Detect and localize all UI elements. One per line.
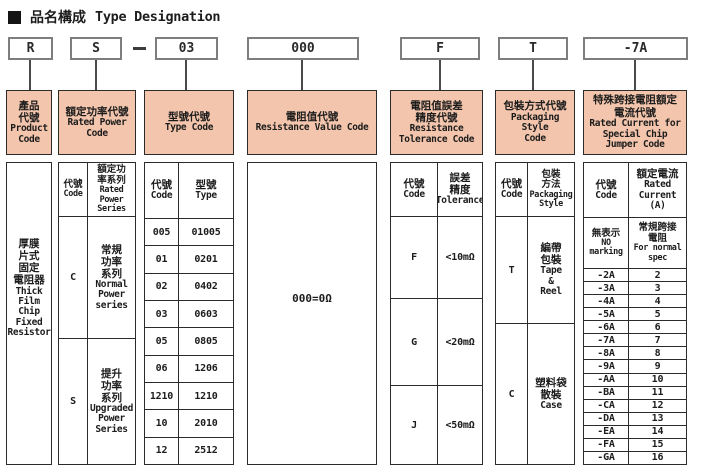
type-row-type-cell: 01005 <box>179 218 233 245</box>
power-subheader-desc-cell: 額定功 率系列 Rated Power Series <box>88 163 135 216</box>
jumper-row-code-cell: -6A <box>584 320 629 333</box>
cell-text: 包裝 方法 <box>541 170 560 191</box>
cell-text: Rated Current (A) <box>639 180 677 211</box>
power-row-desc-cell: 提升 功率 系列 Upgraded Power Series <box>88 338 135 464</box>
type-row-type-cell: 0805 <box>179 327 233 354</box>
tolerance-subheader-code-cell: 代號 Code <box>391 163 438 216</box>
dash-separator-icon <box>133 47 146 50</box>
tolerance-row-value-cell: <50mΩ <box>438 385 482 464</box>
jumper-row-code-cell: -FA <box>584 438 629 451</box>
connector-line <box>634 60 636 90</box>
header-text: 電阻值誤差 精度代號 <box>410 100 463 125</box>
jumper-no-marking-code-cell: 無表示 NO marking <box>584 217 629 268</box>
header-text: Rated Current for Special Chip Jumper Co… <box>589 119 680 151</box>
jumper-row-code-cell: -EA <box>584 425 629 438</box>
cell-text: NO marking <box>589 239 622 257</box>
cell-text: Rated Power Series <box>97 186 126 214</box>
title-cjk: 品名構成 <box>30 7 86 27</box>
cell-text: Type <box>195 191 216 201</box>
connector-line <box>532 60 534 90</box>
type-row-code-cell: 06 <box>145 355 179 382</box>
type-row-code-cell: 05 <box>145 327 179 354</box>
header-text: Rated Power Code <box>67 118 126 139</box>
connector-line <box>439 60 441 90</box>
code-box-power: S <box>70 37 122 60</box>
jumper-row-code-cell: -7A <box>584 333 629 346</box>
resistance-column-header: 電阻值代號 Resistance Value Code <box>247 90 377 155</box>
packaging-table: 代號 Code 包裝 方法 Packaging Style T 編帶 包裝 Ta… <box>495 162 575 465</box>
jumper-row-code-cell: -DA <box>584 412 629 425</box>
code-box-product: R <box>8 37 53 60</box>
type-row-code-cell: 02 <box>145 273 179 300</box>
power-column-header: 額定功率代號 Rated Power Code <box>58 90 136 155</box>
type-row-type-cell: 0402 <box>179 273 233 300</box>
cell-text: Code <box>501 190 522 200</box>
packaging-subheader-desc-cell: 包裝 方法 Packaging Style <box>528 163 574 216</box>
jumper-row-code-cell: -9A <box>584 359 629 372</box>
cell-text: 編帶 包裝 <box>541 242 562 266</box>
cell-text: Code <box>595 191 616 201</box>
packaging-subheader-code-cell: 代號 Code <box>496 163 528 216</box>
jumper-row-value-cell: 3 <box>629 281 686 294</box>
header-text: Resistance Tolerance Code <box>399 124 474 145</box>
jumper-row-code-cell: -4A <box>584 294 629 307</box>
jumper-no-marking-desc-cell: 常規跨接 電阻 For normal spec <box>629 217 686 268</box>
jumper-row-value-cell: 5 <box>629 307 686 320</box>
jumper-row-value-cell: 12 <box>629 399 686 412</box>
header-text: Resistance Value Code <box>256 123 369 134</box>
cell-text: 誤差 精度 <box>450 172 471 196</box>
type-row-type-cell: 0201 <box>179 245 233 272</box>
jumper-row-value-cell: 11 <box>629 386 686 399</box>
tolerance-row-value-cell: <10mΩ <box>438 216 482 298</box>
product-column-header: 產品 代號 Product Code <box>6 90 52 155</box>
cell-text: Case <box>540 401 561 411</box>
type-row-code-cell: 01 <box>145 245 179 272</box>
jumper-row-code-cell: -AA <box>584 373 629 386</box>
header-text: 包裝方式代號 <box>504 100 567 112</box>
product-body: 厚膜 片式 固定 電阻器 Thick Film Chip Fixed Resis… <box>6 162 52 465</box>
jumper-row-code-cell: -5A <box>584 307 629 320</box>
tolerance-row-code-cell: G <box>391 298 438 385</box>
page-title: 品名構成 Type Designation <box>8 7 220 27</box>
type-row-code-cell: 1210 <box>145 382 179 409</box>
jumper-row-code-cell: -2A <box>584 268 629 281</box>
header-text: Type Code <box>165 123 213 134</box>
header-text: 產品 代號 <box>19 100 40 125</box>
type-table: 代號 Code 型號 Type 005 01005 01 0201 02 040… <box>144 162 234 465</box>
packaging-column-header: 包裝方式代號 Packaging Style Code <box>495 90 575 155</box>
code-box-packaging: T <box>498 37 568 60</box>
connector-line <box>301 60 303 90</box>
jumper-row-value-cell: 16 <box>629 451 686 464</box>
jumper-row-value-cell: 2 <box>629 268 686 281</box>
cell-text: 提升 功率 系列 <box>101 368 122 404</box>
power-table: 代號 Code 額定功 率系列 Rated Power Series C 常規 … <box>58 162 136 465</box>
jumper-row-value-cell: 7 <box>629 333 686 346</box>
tolerance-subheader-desc-cell: 誤差 精度 Tolerance <box>438 163 482 216</box>
cell-text: Tape & Reel <box>540 266 561 297</box>
type-row-type-cell: 0603 <box>179 300 233 327</box>
type-row-code-cell: 03 <box>145 300 179 327</box>
section-marker-icon <box>8 11 21 24</box>
jumper-row-value-cell: 4 <box>629 294 686 307</box>
jumper-row-code-cell: -3A <box>584 281 629 294</box>
jumper-row-code-cell: -BA <box>584 386 629 399</box>
type-subheader-desc-cell: 型號 Type <box>179 163 233 218</box>
tolerance-column-header: 電阻值誤差 精度代號 Resistance Tolerance Code <box>390 90 483 155</box>
power-row-code-cell: S <box>59 338 88 464</box>
header-text: Product Code <box>10 124 48 145</box>
jumper-row-value-cell: 14 <box>629 425 686 438</box>
connector-line <box>185 60 187 90</box>
jumper-row-code-cell: -GA <box>584 451 629 464</box>
jumper-row-value-cell: 10 <box>629 373 686 386</box>
jumper-row-value-cell: 6 <box>629 320 686 333</box>
connector-line <box>29 60 31 90</box>
cell-text: Packaging Style <box>530 191 573 209</box>
code-box-resistance: 000 <box>247 37 359 60</box>
power-subheader-code-cell: 代號 Code <box>59 163 88 216</box>
code-box-tolerance: F <box>400 37 480 60</box>
cell-text: Upgraded Power Series <box>90 404 133 435</box>
cell-text: Tolerance <box>438 196 482 206</box>
resistance-value-body: 000=0Ω <box>247 162 377 465</box>
packaging-row-desc-cell: 編帶 包裝 Tape & Reel <box>528 216 574 323</box>
jumper-subheader-desc-cell: 額定電流 Rated Current (A) <box>629 163 686 217</box>
power-row-code-cell: C <box>59 216 88 338</box>
title-en: Type Designation <box>95 9 220 25</box>
cell-text: 常規跨接 電阻 <box>638 223 676 244</box>
type-row-type-cell: 1210 <box>179 382 233 409</box>
tolerance-row-code-cell: J <box>391 385 438 464</box>
jumper-row-code-cell: -8A <box>584 346 629 359</box>
cell-text: 塑料袋 散裝 <box>535 377 567 401</box>
code-box-type: 03 <box>155 37 218 60</box>
type-row-code-cell: 12 <box>145 437 179 464</box>
type-row-type-cell: 1206 <box>179 355 233 382</box>
cell-text: 代號 <box>596 179 617 191</box>
jumper-table: 代號 Code 額定電流 Rated Current (A) 無表示 NO ma… <box>583 162 687 465</box>
type-row-type-cell: 2512 <box>179 437 233 464</box>
header-text: 特殊跨接電阻額定 電流代號 <box>593 94 677 119</box>
type-designation-diagram: 品名構成 Type Designation R S 03 000 F T -7A… <box>0 0 723 475</box>
tolerance-table: 代號 Code 誤差 精度 Tolerance F <10mΩ G <20mΩ … <box>390 162 483 465</box>
product-body-en: Thick Film Chip Fixed Resistor <box>8 287 51 339</box>
resistance-value-text: 000=0Ω <box>292 292 332 305</box>
tolerance-row-value-cell: <20mΩ <box>438 298 482 385</box>
jumper-row-value-cell: 8 <box>629 346 686 359</box>
type-subheader-code-cell: 代號 Code <box>145 163 179 218</box>
cell-text: Code <box>63 190 82 199</box>
jumper-column-header: 特殊跨接電阻額定 電流代號 Rated Current for Special … <box>583 90 687 155</box>
header-text: Packaging Style Code <box>496 113 574 145</box>
jumper-row-value-cell: 9 <box>629 359 686 372</box>
cell-text: Normal Power series <box>95 280 127 311</box>
packaging-row-code-cell: T <box>496 216 528 323</box>
cell-text: 額定功 率系列 <box>97 165 126 186</box>
type-row-code-cell: 10 <box>145 409 179 436</box>
code-box-jumper: -7A <box>583 37 688 60</box>
type-row-code-cell: 005 <box>145 218 179 245</box>
cell-text: For normal spec <box>634 244 682 262</box>
jumper-row-value-cell: 15 <box>629 438 686 451</box>
cell-text: 常規 功率 系列 <box>101 244 122 280</box>
packaging-row-desc-cell: 塑料袋 散裝 Case <box>528 323 574 464</box>
jumper-row-code-cell: -CA <box>584 399 629 412</box>
packaging-row-code-cell: C <box>496 323 528 464</box>
product-body-cjk: 厚膜 片式 固定 電阻器 <box>13 238 45 286</box>
type-column-header: 型號代號 Type Code <box>144 90 234 155</box>
tolerance-row-code-cell: F <box>391 216 438 298</box>
jumper-row-value-cell: 13 <box>629 412 686 425</box>
type-row-type-cell: 2010 <box>179 409 233 436</box>
cell-text: Code <box>151 191 172 201</box>
connector-line <box>95 60 97 90</box>
cell-text: Code <box>403 190 424 200</box>
jumper-subheader-code-cell: 代號 Code <box>584 163 629 217</box>
power-row-desc-cell: 常規 功率 系列 Normal Power series <box>88 216 135 338</box>
